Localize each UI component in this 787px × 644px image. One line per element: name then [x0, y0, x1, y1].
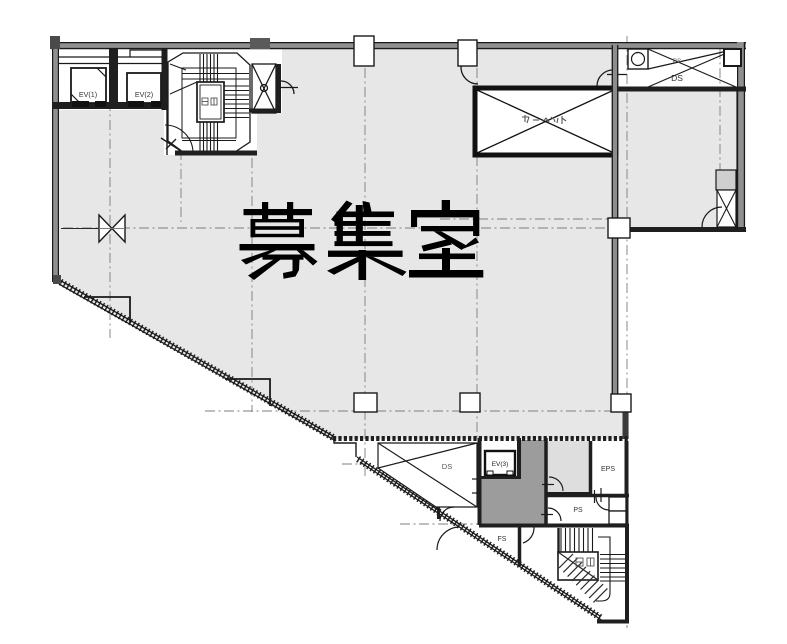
svg-text:FS: FS [498, 536, 507, 543]
svg-text:DS: DS [671, 73, 683, 83]
svg-text:EPS: EPS [601, 466, 615, 473]
svg-text:PS: PS [673, 58, 682, 65]
svg-text:EV(3): EV(3) [492, 461, 509, 468]
svg-text:EV(1): EV(1) [79, 90, 97, 99]
svg-text:DS: DS [442, 462, 452, 471]
svg-text:EV(2): EV(2) [135, 90, 153, 99]
svg-text:PS: PS [573, 507, 583, 514]
